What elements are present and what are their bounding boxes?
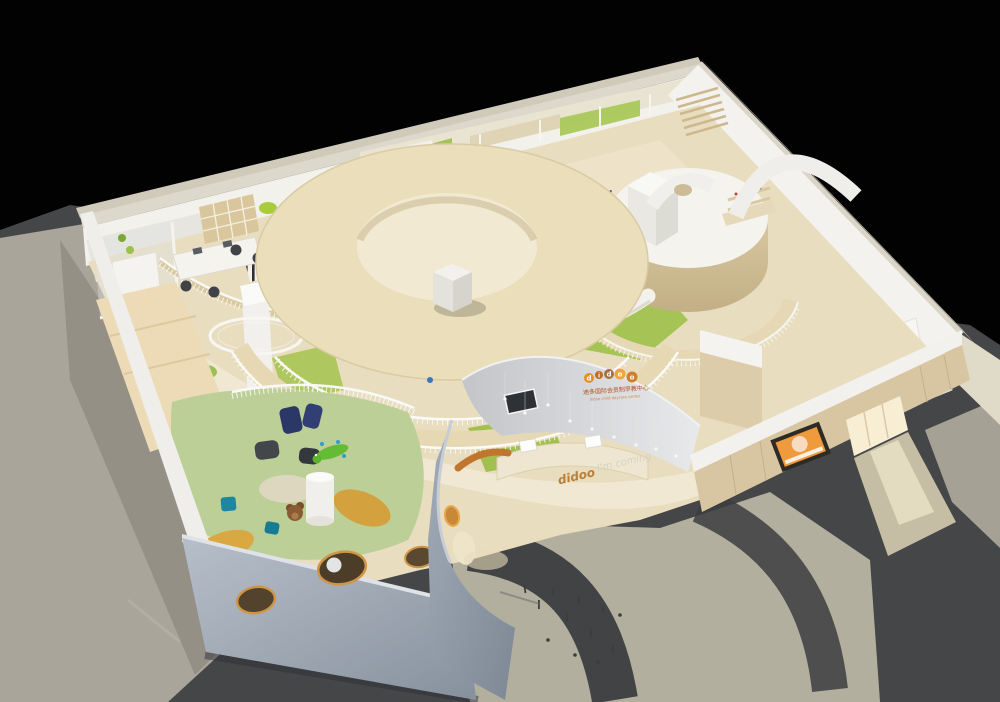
green-chair: [126, 246, 134, 254]
logo-letter-5: o: [630, 374, 635, 382]
white-ball-in-porthole: [327, 558, 342, 573]
logo-letter-1: d: [586, 375, 591, 383]
logo-letter-2: i: [598, 373, 600, 380]
green-plant: [118, 234, 126, 242]
teal-beanbag: [264, 521, 280, 535]
entrance-interior: [700, 330, 762, 432]
white-cylinder-seat: [306, 472, 334, 526]
gray-beanbag-1: [254, 439, 280, 460]
logo-letter-3: d: [606, 371, 611, 379]
teal-cube: [220, 496, 236, 511]
center-box: [433, 264, 472, 312]
wall-niche: [674, 184, 692, 196]
daycare-model-render: d i d o o 迪多国际会员制早教中心 didoo child daycar…: [0, 0, 1000, 702]
arch-glow: [464, 550, 508, 570]
logo-letter-4: o: [618, 371, 623, 379]
render-canvas: d i d o o 迪多国际会员制早教中心 didoo child daycar…: [0, 0, 1000, 702]
toy-dot-2: [427, 377, 433, 383]
